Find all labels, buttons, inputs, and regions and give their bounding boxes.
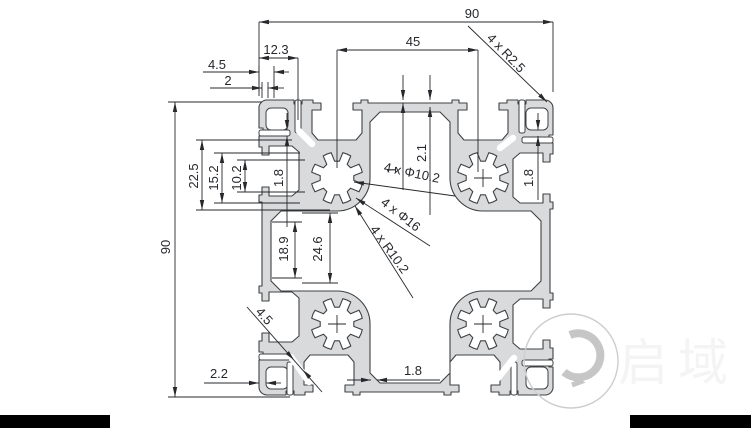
- callout-corner-radius: 4 x R2.5: [484, 30, 528, 75]
- arrowhead-icon: [259, 20, 269, 24]
- arrowhead-icon: [293, 268, 297, 278]
- arrowhead-icon: [252, 86, 262, 90]
- crop-bars: [0, 415, 751, 428]
- arrowhead-icon: [249, 70, 259, 74]
- crop-bar-left: [0, 415, 110, 428]
- drawing-canvas: 启域 90 45 12.3 4.5 2 90 22.5 15.2 10.2 1.…: [0, 0, 751, 428]
- dim-2-1: 2.1: [414, 144, 429, 162]
- callout-bore-dia: 4 x Φ10.2: [383, 159, 442, 185]
- arrowhead-icon: [220, 153, 224, 163]
- dim-slot-pitch: 45: [406, 34, 420, 49]
- dim-2-2: 2.2: [210, 366, 228, 381]
- arrowhead-icon: [173, 387, 177, 397]
- dim-12-3: 12.3: [263, 42, 288, 57]
- logo-text: 启域: [618, 335, 738, 391]
- dim-corner-4-5: 4.5: [253, 304, 276, 327]
- corner-screw-hole: [526, 108, 548, 130]
- corner-slit-horizontal: [522, 360, 553, 366]
- corner-screw-hole: [266, 367, 288, 389]
- dimension-labels: 90 45 12.3 4.5 2 90 22.5 15.2 10.2 1.8 1…: [158, 6, 536, 381]
- arrowhead-icon: [200, 200, 204, 210]
- dim-top-4-5: 4.5: [208, 57, 226, 72]
- arrowhead-icon: [543, 20, 553, 24]
- dim-top-width: 90: [465, 6, 479, 21]
- dim-left-height: 90: [158, 240, 173, 254]
- arrowhead-icon: [328, 213, 332, 223]
- profile-drawing-svg: 启域 90 45 12.3 4.5 2 90 22.5 15.2 10.2 1.…: [0, 0, 751, 428]
- corner-screw-hole: [266, 108, 288, 130]
- dim-top-2: 2: [224, 73, 231, 88]
- arrowhead-icon: [428, 90, 432, 100]
- corner-slit-horizontal: [259, 130, 290, 136]
- arrowhead-icon: [274, 70, 284, 74]
- arrowhead-icon: [268, 86, 278, 90]
- logo-q-arc-icon: [564, 333, 600, 377]
- arrowhead-icon: [328, 273, 332, 283]
- dim-15-2: 15.2: [206, 165, 221, 190]
- arrowhead-icon: [249, 381, 259, 385]
- arrowhead-icon: [337, 48, 347, 52]
- arrowhead-icon: [200, 140, 204, 150]
- corner-screw-hole: [526, 367, 548, 389]
- arrowhead-icon: [468, 48, 478, 52]
- arrowhead-icon: [293, 222, 297, 232]
- dim-18-9: 18.9: [276, 236, 291, 261]
- corner-slit-vertical: [511, 362, 517, 395]
- logo-watermark: 启域: [524, 314, 738, 408]
- leader-line: [354, 182, 455, 196]
- corner-slit-vertical: [519, 100, 525, 133]
- dim-22-5: 22.5: [186, 163, 201, 188]
- arrowhead-icon: [355, 206, 362, 216]
- corner-slit-horizontal: [259, 354, 290, 360]
- dim-left-1-8: 1.8: [271, 169, 286, 187]
- corner-slit-vertical: [287, 362, 293, 395]
- profile-cross-section: [259, 100, 553, 395]
- arrowhead-icon: [220, 193, 224, 203]
- dim-24-6: 24.6: [310, 236, 325, 261]
- arrowhead-icon: [401, 90, 405, 100]
- dim-right-1-8: 1.8: [521, 169, 536, 187]
- dim-bottom-1-8: 1.8: [404, 363, 422, 378]
- arrowhead-icon: [288, 56, 298, 60]
- dim-10-2: 10.2: [229, 165, 244, 190]
- arrowhead-icon: [173, 102, 177, 112]
- crop-bar-right: [630, 415, 751, 428]
